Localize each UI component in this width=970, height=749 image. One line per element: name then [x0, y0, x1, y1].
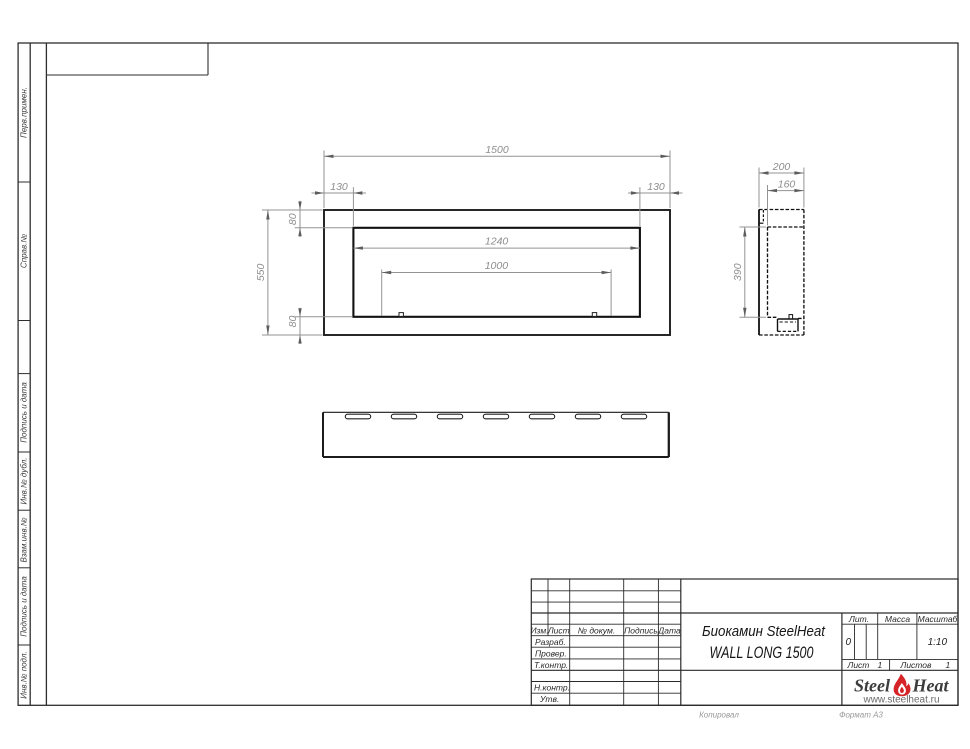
svg-text:550: 550	[255, 263, 267, 281]
svg-text:1500: 1500	[485, 144, 509, 156]
svg-text:Листов: Листов	[900, 660, 933, 670]
svg-text:Лист: Лист	[547, 625, 570, 635]
svg-text:1240: 1240	[485, 235, 509, 247]
svg-text:Подпись и дата: Подпись и дата	[20, 576, 29, 637]
svg-text:1:10: 1:10	[928, 637, 948, 648]
svg-text:1: 1	[946, 660, 951, 670]
svg-text:390: 390	[732, 263, 744, 281]
svg-text:Лит.: Лит.	[848, 614, 869, 624]
svg-text:130: 130	[647, 181, 665, 193]
svg-text:0: 0	[846, 637, 852, 648]
svg-text:Н.контр.: Н.контр.	[534, 683, 570, 693]
svg-text:Перв.примен.: Перв.примен.	[20, 87, 29, 138]
svg-text:Масса: Масса	[885, 614, 910, 624]
svg-text:Т.контр.: Т.контр.	[534, 660, 568, 670]
svg-text:Инв.№ подл.: Инв.№ подл.	[20, 651, 29, 698]
svg-text:Heat: Heat	[912, 676, 950, 696]
svg-text:Масштаб: Масштаб	[918, 614, 959, 624]
svg-text:130: 130	[330, 181, 348, 193]
svg-text:Инв.№ дубл.: Инв.№ дубл.	[20, 458, 29, 505]
svg-text:Взам.инв.№: Взам.инв.№	[20, 517, 29, 562]
svg-text:Steel: Steel	[854, 676, 890, 696]
svg-text:№ докум.: № докум.	[578, 625, 615, 635]
svg-text:Копировал: Копировал	[699, 711, 739, 720]
svg-text:Подпись и дата: Подпись и дата	[20, 382, 29, 443]
svg-text:Провер.: Провер.	[535, 648, 567, 658]
svg-text:160: 160	[778, 178, 796, 190]
svg-text:Дата: Дата	[657, 625, 681, 635]
svg-text:Изм.: Изм.	[530, 625, 548, 635]
svg-text:Лист: Лист	[847, 660, 870, 670]
svg-text:Подпись: Подпись	[624, 625, 658, 635]
svg-text:www.steelheat.ru: www.steelheat.ru	[863, 695, 940, 706]
svg-text:80: 80	[287, 316, 299, 328]
svg-text:1000: 1000	[485, 260, 509, 272]
svg-text:Справ.№: Справ.№	[20, 234, 29, 268]
svg-text:200: 200	[772, 161, 791, 173]
svg-text:Формат А3: Формат А3	[839, 711, 883, 720]
svg-text:Разраб.: Разраб.	[535, 637, 566, 647]
svg-text:WALL LONG 1500: WALL LONG 1500	[710, 644, 815, 662]
svg-text:Биокамин SteelHeat: Биокамин SteelHeat	[702, 623, 826, 640]
svg-text:80: 80	[287, 213, 299, 225]
svg-text:Утв.: Утв.	[539, 694, 559, 704]
svg-text:1: 1	[878, 660, 883, 670]
